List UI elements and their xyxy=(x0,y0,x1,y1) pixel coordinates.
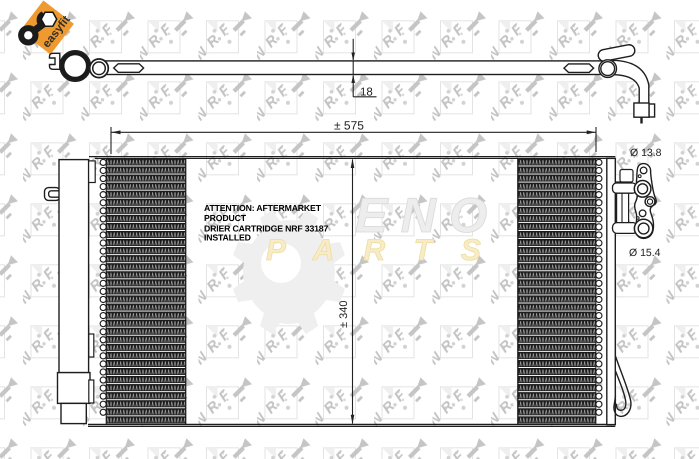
svg-text:Ø 15.4: Ø 15.4 xyxy=(629,247,661,259)
svg-text:± 575: ± 575 xyxy=(334,119,364,133)
svg-text:PARTS: PARTS xyxy=(266,234,510,267)
svg-text:PRODUCT: PRODUCT xyxy=(204,213,247,223)
svg-text:± 340: ± 340 xyxy=(338,301,350,328)
svg-text:18: 18 xyxy=(360,87,373,99)
svg-text:INSTALLED: INSTALLED xyxy=(204,233,251,243)
svg-text:Ø 13.8: Ø 13.8 xyxy=(630,147,662,159)
svg-text:ATTENTION: AFTERMARKET: ATTENTION: AFTERMARKET xyxy=(204,203,322,213)
